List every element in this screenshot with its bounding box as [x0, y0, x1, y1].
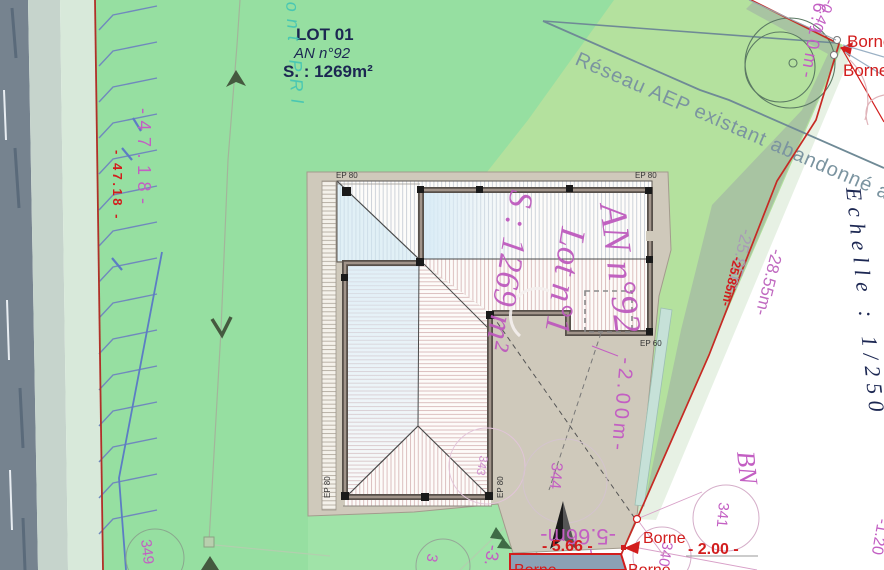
svg-text:Borne: Borne — [847, 32, 884, 51]
svg-text:EP 60: EP 60 — [640, 339, 662, 348]
svg-text:- 2.00 -: - 2.00 - — [688, 541, 739, 558]
svg-text:-3.: -3. — [480, 543, 503, 567]
svg-text:Borne: Borne — [843, 61, 884, 80]
svg-text:Borne: Borne — [628, 562, 671, 570]
svg-text:EP 80: EP 80 — [496, 476, 505, 498]
svg-text:BN: BN — [731, 450, 763, 488]
svg-text:344: 344 — [546, 462, 565, 490]
svg-text:-47.18-: -47.18- — [134, 108, 154, 211]
svg-text:341: 341 — [713, 502, 732, 528]
svg-text:Borne: Borne — [514, 562, 557, 570]
svg-text:- 5.66 -: - 5.66 - — [542, 538, 593, 555]
svg-text:EP 80: EP 80 — [336, 171, 358, 180]
svg-text:349: 349 — [137, 538, 157, 565]
svg-text:EP 80: EP 80 — [323, 476, 332, 498]
svg-text:- 47.18 -: - 47.18 - — [110, 150, 125, 221]
svg-text:Borne: Borne — [643, 530, 686, 547]
svg-text:EP 80: EP 80 — [635, 171, 657, 180]
